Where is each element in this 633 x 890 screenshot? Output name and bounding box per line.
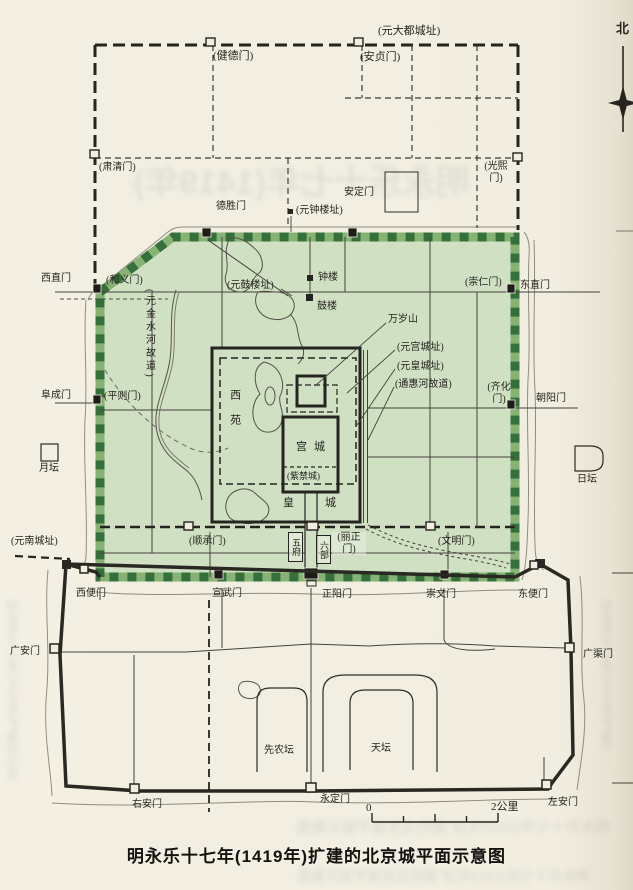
gate-label-fuchengmen: 阜成门 [41,390,71,402]
relic-label-jinshui-river: (元金水河故道) [143,289,155,380]
gate-label-chongrenmen: (崇仁门) [465,277,502,289]
yuan-dadu-site-label: (元大都城址) [378,25,440,38]
gate-label-heyimen: (和义门) [106,275,143,287]
gate-label-lizhengmen: (丽正 门) [332,532,366,555]
gate-label-guangqumen: 广渠门 [583,649,613,661]
landmark-label-drum-tower: 鼓楼 [317,301,337,313]
scale-end-label: 2公里 [491,801,519,814]
gate-label-andingmen: 安定门 [344,187,374,199]
yuan-street-grid [95,45,518,228]
tiantan-inner-outline [350,690,413,770]
bell-tower-marker [307,275,313,281]
relic-label-tonghui-river: (通惠河故道) [395,379,452,391]
relic-label-yuan-drum-tower: (元鼓楼址) [227,280,274,292]
outer-gate-markers [50,561,574,793]
north-label: 北 [616,18,629,37]
yuan-south-city-wall-remnant [15,556,70,559]
gate-label-guangximen: (光熙 门) [479,161,513,184]
gate-label-shunchengmen: (顺承门) [189,536,226,548]
landmark-label-zijincheng: (紫禁城) [287,471,320,481]
altar-label-ritan: 日坛 [577,474,597,486]
gate-label-deshengmen: 德胜门 [216,201,246,213]
landmark-label-huangcheng: 皇城 [283,497,367,510]
gate-label-qihuamen: (齐化 门) [482,382,516,405]
gate-label-youanmen: 右安门 [132,799,162,811]
altar-label-yuetan: 月坛 [39,463,59,475]
outer-wall-nw-corner [62,560,71,569]
relic-label-yuan-bell-tower: (元钟楼址) [296,205,343,217]
gate-label-zuoanmen: 左安门 [548,797,578,809]
map-page: 明永乐十七年(1419年)扩建的北京城平面示意图 明永乐十七年(1419年)扩建… [0,0,633,890]
scale-bar [372,813,498,822]
gate-label-suqingmen: (肃清门) [99,162,136,174]
relic-label-yuan-palace: (元宫城址) [397,342,444,354]
landmark-label-tiantan: 天坛 [371,743,391,755]
map-title: 明永乐十七年(1419年)扩建的北京城平面示意图 [0,842,633,867]
yuan-south-city-label: (元南城址) [11,536,58,548]
gate-label-dongzhimen: 东直门 [520,280,550,292]
xiannongtan-outline [257,688,307,772]
yuetan-outline [41,444,58,461]
ritan-outline [575,446,603,471]
gate-label-pingzemen: (平则门) [104,391,141,403]
compound-outside-andingmen [385,172,418,212]
relic-label-yuan-imperial-city: (元皇城址) [397,361,444,373]
landmark-label-xiyuan: 西苑 [228,389,241,439]
gate-label-chaoyangmen: 朝阳门 [536,393,566,405]
gate-label-yongdingmen: 永定门 [320,794,350,806]
gate-label-guanganmen: 广安门 [10,646,40,658]
gate-label-dongbianmen: 东便门 [518,589,548,601]
landmark-label-gongcheng: 宫城 [296,441,332,454]
drum-tower-marker [306,294,313,301]
yuan-bell-tower-site-marker [288,209,293,214]
gate-label-chongwenmen: 崇文门 [426,589,456,601]
landmark-label-liubu: 六部 [316,535,331,564]
gate-label-anzhenmen: (安贞门) [360,51,400,64]
north-arrow [608,46,633,132]
landmark-label-wansuishan: 万岁山 [388,314,418,326]
scale-zero-label: 0 [366,802,372,815]
landmark-label-bell-tower: 钟楼 [318,272,338,284]
gate-label-xizhimen: 西直门 [41,273,71,285]
gate-label-xuanwumen: 宣武门 [212,588,242,600]
landmark-label-wufu: 五府 [288,532,303,562]
gate-label-xibianmen: 西便门 [76,588,106,600]
outer-city-wall [60,564,573,791]
gate-label-wenmingmen: (文明门) [438,536,475,548]
gate-label-zhengyangmen: 正阳门 [322,589,352,601]
gate-label-jiandemen: (健德门) [213,50,253,63]
landmark-label-xiannongtan: 先农坛 [264,745,294,757]
